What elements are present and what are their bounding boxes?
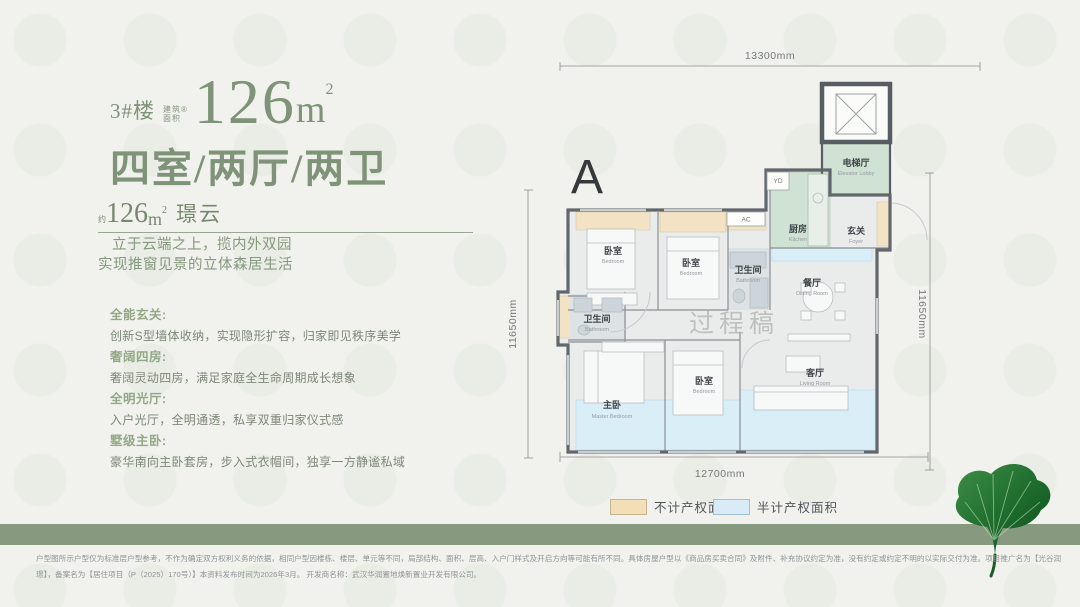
svg-text:Living Room: Living Room bbox=[800, 381, 831, 387]
disclaimer: 户型图所示户型仅为标准层户型参考，不作为确定双方权利义务的依据，相同户型因楼栋、… bbox=[36, 551, 1076, 582]
area-value: 126 bbox=[194, 72, 296, 133]
feature-master: 墅级主卧: 豪华南向主卧套房，步入式衣帽间，独享一方静谧私域 bbox=[110, 430, 480, 470]
svg-text:Bathroom: Bathroom bbox=[736, 278, 760, 284]
dimension-top: 13300mm bbox=[745, 50, 795, 62]
floor-plan: AC YD 电梯厅 Elevator Lobby 厨房 Kitchen 玄关 F… bbox=[500, 42, 1040, 492]
svg-text:Dining Room: Dining Room bbox=[796, 291, 828, 297]
intro-paragraph: 立于云端之上，揽内外双园 实现推窗见景的立体森居生活 bbox=[98, 235, 293, 275]
area-unit: m bbox=[296, 91, 326, 133]
svg-text:Foyer: Foyer bbox=[849, 239, 863, 245]
legend-half-counted: 半计产权面积 bbox=[713, 497, 838, 516]
feature-foyer: 全能玄关: 创新S型墙体收纳，实现隐形扩容，归家即见秩序美学 bbox=[110, 304, 480, 344]
disclaimer-line-2: 璟】，备案名为【居住项目（P（2025）170号）】本资料发布时间为2026年3… bbox=[36, 567, 1076, 583]
room-master-bedroom: 主卧 bbox=[603, 399, 621, 410]
approx-prefix: 约 bbox=[98, 214, 106, 228]
room-dining: 餐厅 bbox=[802, 277, 821, 288]
room-foyer: 玄关 bbox=[847, 225, 865, 236]
building-number: 3#楼 bbox=[110, 95, 155, 133]
area-headline: 3#楼 建筑® 面积 126 m 2 bbox=[110, 72, 333, 133]
area-note: 建筑® 面积 bbox=[155, 105, 194, 133]
svg-text:Master Bedroom: Master Bedroom bbox=[592, 414, 633, 420]
disclaimer-line-1: 户型图所示户型仅为标准层户型参考，不作为确定双方权利义务的依据，相同户型因楼栋、… bbox=[36, 551, 1076, 567]
feature-rooms: 奢阔四房: 奢阔灵动四房，满足家庭全生命周期成长想象 bbox=[110, 346, 480, 386]
dimension-bottom: 12700mm bbox=[695, 468, 745, 480]
plan-label: A bbox=[571, 151, 603, 204]
room-living: 客厅 bbox=[805, 367, 824, 378]
room-bathroom-mid: 卫生间 bbox=[734, 264, 761, 275]
room-bedroom-top-mid: 卧室 bbox=[682, 257, 700, 268]
layout-title: 四室/两厅/两卫 bbox=[110, 136, 388, 194]
svg-text:Bathroom: Bathroom bbox=[585, 327, 609, 333]
flyer-page: 3#楼 建筑® 面积 126 m 2 四室/两厅/两卫 约 126 m 2 璟云… bbox=[0, 0, 1080, 607]
draft-watermark: 过程稿 bbox=[689, 310, 779, 338]
room-bedroom-bottom: 卧室 bbox=[695, 375, 713, 386]
room-bathroom-left: 卫生间 bbox=[583, 313, 610, 324]
room-kitchen: 厨房 bbox=[789, 223, 807, 234]
elevator-lobby-area bbox=[822, 142, 890, 195]
room-elevator-lobby: 电梯厅 bbox=[842, 157, 869, 168]
svg-text:Elevator Lobby: Elevator Lobby bbox=[838, 171, 875, 177]
ac-tag: AC bbox=[741, 217, 750, 224]
bottom-band bbox=[0, 524, 1080, 545]
area-unit-sup: 2 bbox=[325, 81, 333, 133]
product-name: 璟云 bbox=[167, 198, 222, 228]
yd-tag: YD bbox=[773, 178, 782, 185]
legend-swatch-tan bbox=[610, 499, 647, 515]
legend-swatch-blue bbox=[713, 499, 750, 515]
room-bedroom-top-left: 卧室 bbox=[604, 245, 622, 256]
feature-hall: 全明光厅: 入户光厅，全明通透，私享双重归家仪式感 bbox=[110, 388, 480, 428]
svg-text:Bedroom: Bedroom bbox=[602, 259, 625, 265]
svg-text:Bedroom: Bedroom bbox=[680, 271, 703, 277]
product-subtitle: 约 126 m 2 璟云 bbox=[98, 198, 473, 233]
svg-text:Bedroom: Bedroom bbox=[693, 389, 716, 395]
svg-text:Kitchen: Kitchen bbox=[789, 237, 807, 243]
dimension-right: 11650mm bbox=[916, 289, 928, 338]
dimension-left: 11650mm bbox=[507, 299, 519, 348]
elevator-shaft bbox=[822, 84, 890, 142]
